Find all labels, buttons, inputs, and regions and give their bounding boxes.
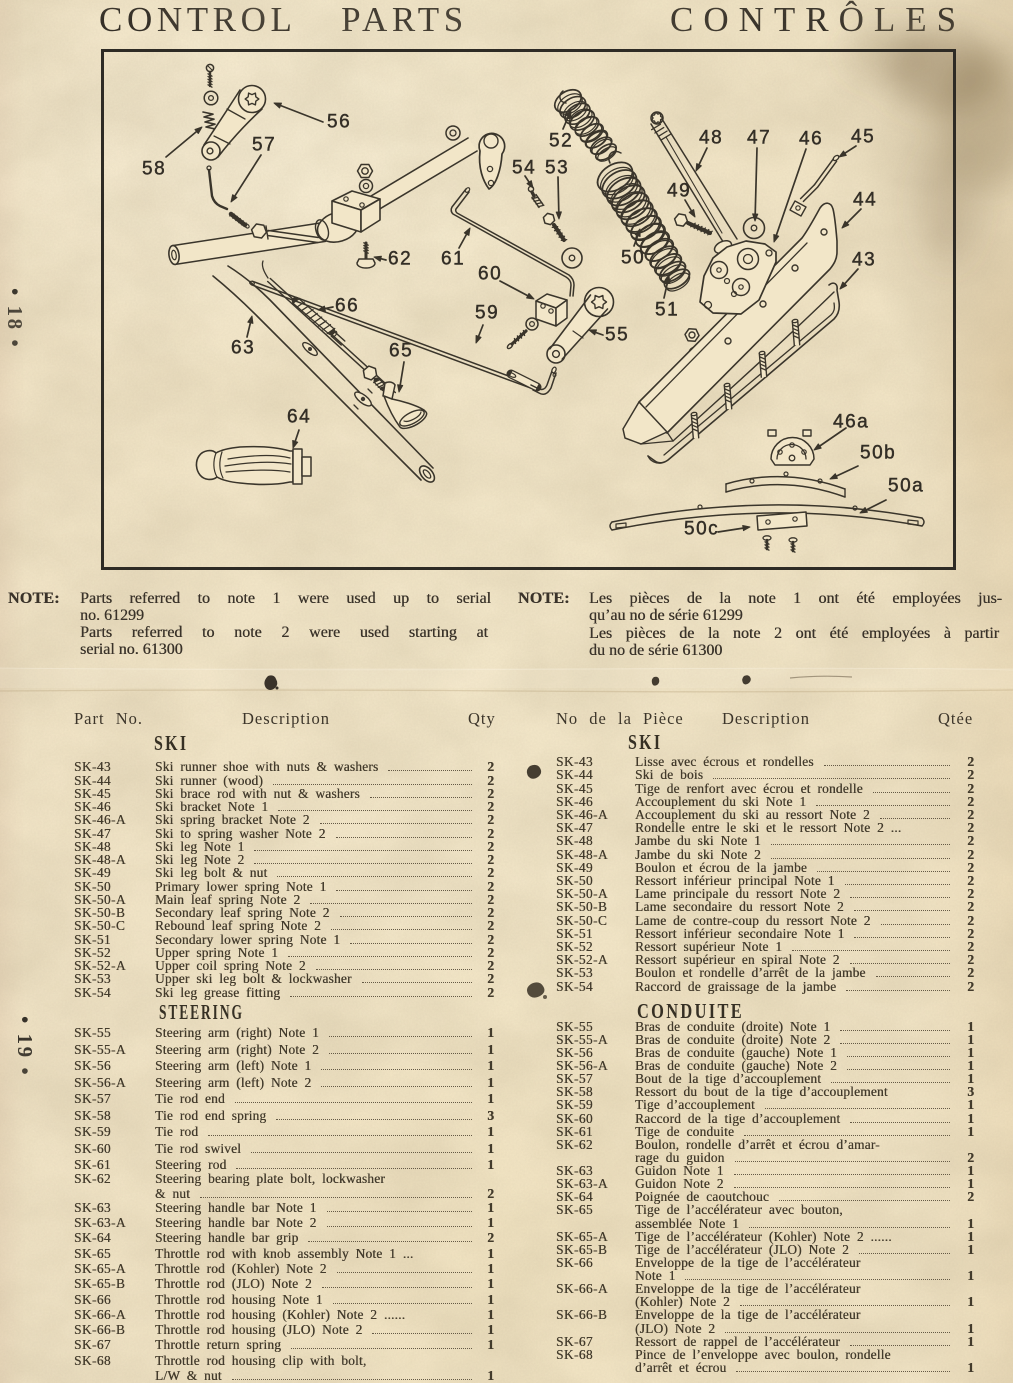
svg-text:50a: 50a — [888, 476, 924, 497]
svg-text:50b: 50b — [860, 443, 896, 464]
svg-text:60: 60 — [478, 264, 502, 285]
svg-text:46a: 46a — [833, 412, 869, 433]
svg-text:45: 45 — [851, 127, 875, 148]
svg-text:61: 61 — [441, 249, 465, 270]
svg-text:57: 57 — [252, 135, 276, 156]
svg-text:59: 59 — [475, 303, 499, 324]
svg-text:47: 47 — [747, 128, 771, 149]
svg-text:55: 55 — [605, 325, 629, 346]
svg-text:63: 63 — [231, 338, 255, 359]
svg-text:58: 58 — [142, 159, 166, 180]
svg-text:48: 48 — [699, 128, 723, 149]
svg-text:52: 52 — [549, 131, 573, 152]
svg-text:44: 44 — [853, 190, 877, 211]
svg-text:64: 64 — [287, 407, 311, 428]
svg-text:62: 62 — [388, 249, 412, 270]
svg-text:50c: 50c — [684, 519, 719, 540]
svg-text:43: 43 — [852, 250, 876, 271]
svg-text:53: 53 — [545, 158, 569, 179]
svg-text:65: 65 — [389, 341, 413, 362]
svg-text:46: 46 — [799, 129, 823, 150]
svg-text:54: 54 — [512, 158, 536, 179]
svg-text:51: 51 — [655, 300, 679, 321]
svg-text:50: 50 — [621, 248, 645, 269]
svg-text:49: 49 — [667, 181, 691, 202]
svg-text:56: 56 — [327, 112, 351, 133]
svg-text:66: 66 — [335, 296, 359, 317]
